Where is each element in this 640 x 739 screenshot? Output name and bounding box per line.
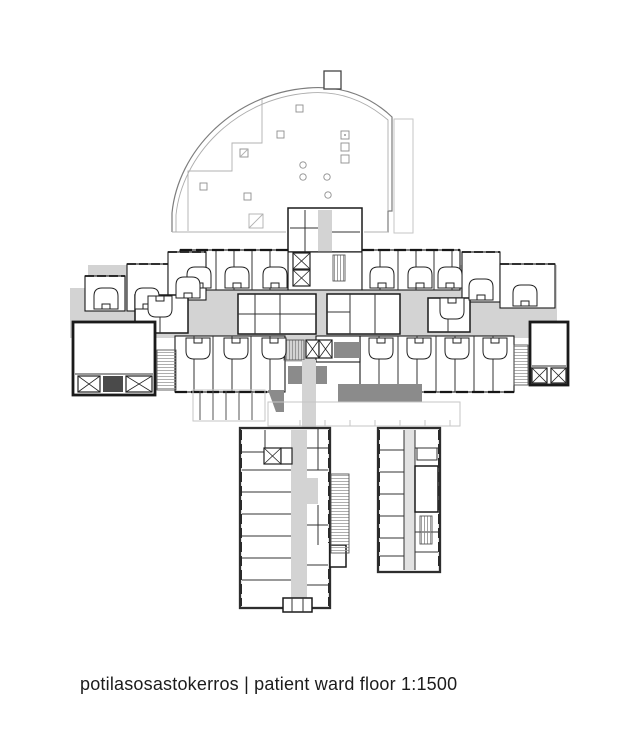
fan-step-line: [188, 99, 262, 231]
core-stair-icon: [333, 255, 345, 281]
plan-caption: potilasosastokerros | patient ward floor…: [80, 674, 457, 695]
east-end-block: [530, 322, 568, 385]
stair-ramp: [331, 474, 349, 553]
east-stair-icon: [514, 345, 528, 385]
lower-floor-outline: [268, 402, 460, 426]
canopy-columns: [200, 391, 252, 420]
spine-stair-icon: [284, 340, 304, 360]
canopy-outline: [193, 390, 265, 421]
roof-stub: [324, 71, 341, 89]
west-stair-icon: [157, 350, 176, 390]
central-spine-core: [284, 340, 360, 360]
floor-plan-svg: [0, 0, 640, 739]
sw-wing-corridor: [291, 430, 307, 606]
se-wing-corridor: [404, 430, 415, 570]
elevator-icon: [293, 253, 310, 286]
sw-entrance-stub: [283, 598, 312, 612]
se-stair-icon: [420, 516, 432, 544]
fan-side-annex-outline: [394, 119, 413, 233]
south-west-wing: [240, 428, 346, 612]
skylight-circles: [300, 162, 331, 198]
floor-plan-page: potilasosastokerros | patient ward floor…: [0, 0, 640, 739]
south-east-wing: [378, 428, 440, 572]
sw-elevator-icon: [264, 448, 292, 464]
central-core: [288, 208, 362, 290]
west-end-block: [73, 322, 155, 395]
